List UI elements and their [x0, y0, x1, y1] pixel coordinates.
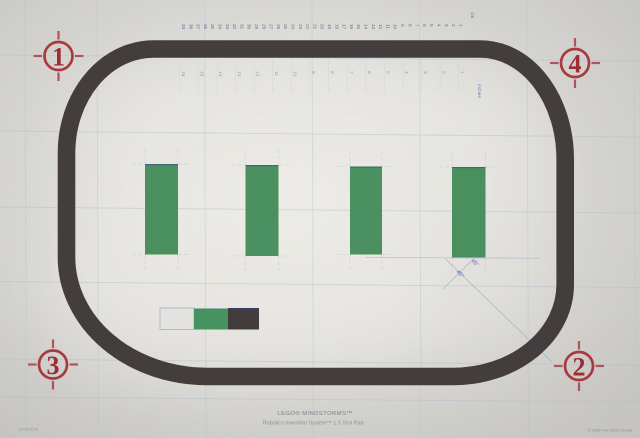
svg-text:12: 12: [254, 71, 260, 77]
svg-text:14: 14: [364, 24, 369, 30]
svg-text:33: 33: [225, 24, 230, 30]
svg-text:2: 2: [451, 24, 456, 27]
svg-text:15: 15: [356, 24, 361, 30]
svg-text:32: 32: [232, 24, 237, 30]
svg-text:37: 37: [196, 24, 201, 30]
svg-text:38: 38: [188, 24, 193, 30]
svg-text:35: 35: [210, 24, 215, 30]
svg-text:24: 24: [291, 24, 296, 30]
svg-text:8: 8: [407, 24, 412, 27]
svg-text:31: 31: [239, 24, 244, 30]
svg-text:39: 39: [181, 24, 186, 30]
svg-text:13: 13: [371, 24, 376, 30]
svg-text:17: 17: [342, 24, 347, 30]
svg-text:1: 1: [52, 42, 65, 71]
svg-text:25: 25: [283, 24, 288, 30]
svg-text:cm: cm: [469, 12, 474, 18]
svg-text:15: 15: [199, 71, 205, 77]
svg-text:36: 36: [203, 24, 208, 30]
svg-text:10: 10: [292, 71, 298, 77]
svg-text:5: 5: [385, 71, 391, 74]
svg-text:23: 23: [298, 24, 303, 30]
svg-text:11: 11: [273, 71, 279, 76]
svg-text:2: 2: [573, 352, 586, 381]
svg-text:10: 10: [393, 24, 398, 30]
svg-text:3: 3: [422, 71, 428, 74]
svg-text:4178516 IN: 4178516 IN: [18, 427, 38, 432]
svg-text:1: 1: [459, 71, 465, 74]
svg-text:LEGO® MINDSTORMS™: LEGO® MINDSTORMS™: [277, 410, 352, 417]
svg-text:12: 12: [378, 24, 383, 30]
svg-text:5: 5: [429, 24, 434, 27]
svg-text:21: 21: [312, 24, 317, 30]
svg-text:9: 9: [310, 71, 316, 74]
svg-text:Robotics Invention System™ 1.5: Robotics Invention System™ 1.5 Test Pad: [263, 421, 364, 427]
svg-text:9: 9: [400, 24, 405, 27]
svg-text:22: 22: [305, 24, 310, 30]
svg-text:26: 26: [276, 24, 281, 30]
svg-text:2: 2: [440, 71, 446, 74]
svg-text:19: 19: [327, 24, 332, 30]
svg-text:6: 6: [366, 71, 372, 74]
svg-text:28: 28: [261, 24, 266, 30]
svg-text:6: 6: [422, 24, 427, 27]
svg-text:inches: inches: [476, 84, 482, 98]
svg-text:11: 11: [385, 24, 390, 29]
svg-text:1: 1: [458, 24, 463, 27]
svg-text:© 1998 The LEGO Group: © 1998 The LEGO Group: [588, 428, 632, 433]
svg-text:16: 16: [180, 71, 186, 77]
svg-text:4: 4: [403, 71, 409, 74]
svg-text:29: 29: [254, 24, 259, 30]
svg-text:30: 30: [247, 24, 252, 30]
svg-text:27: 27: [269, 24, 274, 30]
svg-text:4: 4: [437, 24, 442, 27]
svg-text:8: 8: [329, 71, 335, 74]
svg-text:14: 14: [217, 71, 223, 77]
svg-text:7: 7: [347, 71, 353, 74]
svg-text:3: 3: [47, 351, 60, 380]
svg-text:34: 34: [218, 24, 223, 30]
svg-text:4: 4: [569, 49, 582, 78]
svg-text:18: 18: [334, 24, 339, 30]
svg-text:16: 16: [349, 24, 354, 30]
svg-text:20: 20: [320, 24, 325, 30]
svg-text:3: 3: [444, 24, 449, 27]
svg-text:13: 13: [236, 71, 242, 77]
svg-text:7: 7: [415, 24, 420, 27]
